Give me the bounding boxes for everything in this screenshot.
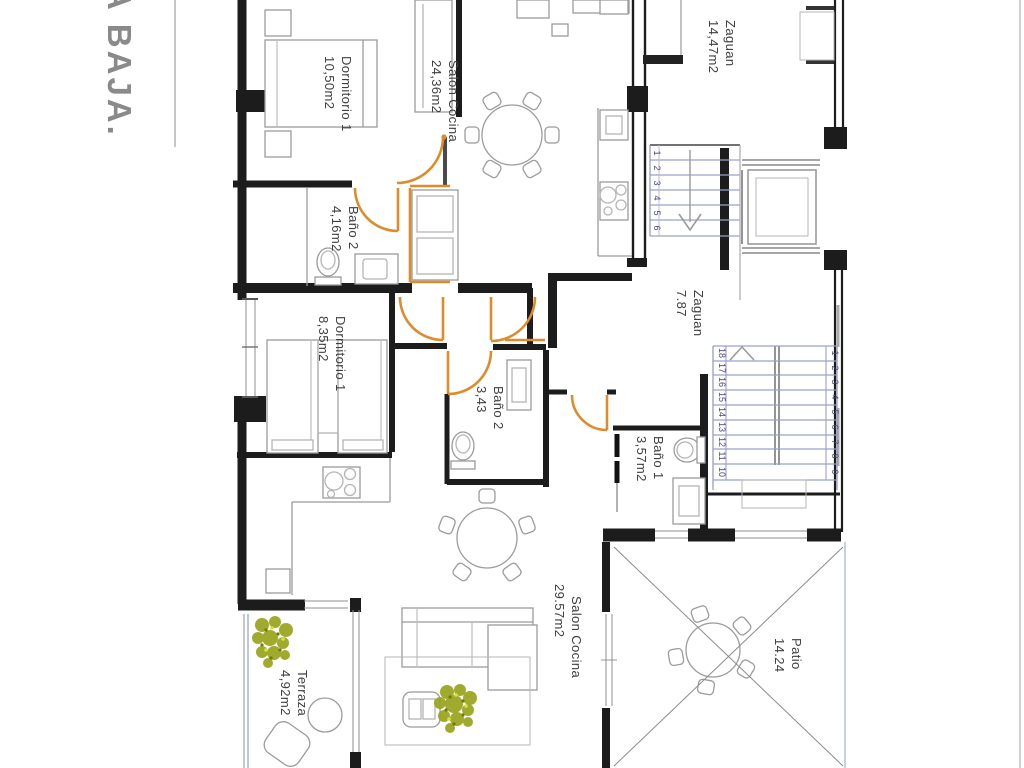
- stair-num: 17: [717, 363, 727, 373]
- door-arc-bano1: [572, 395, 607, 430]
- room-label-dormitorio2: Dormitorio 1 8,35m2: [316, 316, 348, 392]
- room-label-bano2-mid: Baño 2 3,43: [474, 386, 506, 430]
- small-table: [308, 698, 342, 732]
- svg-text:14.24: 14.24: [772, 638, 787, 673]
- stair-num: 10: [717, 467, 727, 477]
- svg-text:4,92m2: 4,92m2: [278, 670, 293, 716]
- door-arc-salon: [397, 137, 443, 183]
- toilet: [452, 432, 474, 460]
- stair-main-left-numbers: 18 17 16 15 14 13 12 11 10: [717, 348, 727, 477]
- elevator: [720, 127, 847, 270]
- plan-title-text: A BAJA.: [101, 0, 138, 138]
- dining-table-bottom: [438, 489, 537, 582]
- stair-num: 16: [717, 377, 727, 387]
- kitchen-bottom: [266, 458, 390, 595]
- stair-num: 2: [652, 165, 662, 170]
- svg-text:Dormitorio 1: Dormitorio 1: [333, 316, 348, 392]
- plant-terraza: [252, 616, 293, 668]
- stair-num: 5: [652, 210, 662, 215]
- svg-text:24,36m2: 24,36m2: [429, 60, 444, 113]
- room-label-salon-bottom: Salon Cocina 29.57m2: [552, 584, 584, 678]
- stair-num: 3: [652, 180, 662, 185]
- floor-plan-drawing: 1 2 3 4 5 6 18 17 16 15 14: [0, 0, 1024, 768]
- svg-text:Dormitorio 1: Dormitorio 1: [339, 56, 354, 132]
- svg-text:14,47m2: 14,47m2: [706, 20, 721, 73]
- plan-title: A BAJA.: [101, 0, 138, 138]
- svg-text:Zaguan: Zaguan: [691, 290, 706, 337]
- chair: [260, 718, 313, 768]
- stair-num: 2: [830, 365, 840, 370]
- stair-num: 13: [717, 422, 727, 432]
- svg-text:29.57m2: 29.57m2: [552, 584, 567, 637]
- stair-num: 7: [830, 439, 840, 444]
- patio-table: [668, 605, 756, 696]
- sink-vanity: [673, 478, 705, 524]
- stair-num: 15: [717, 392, 727, 402]
- room-label-zaguan-mid: Zaguan 7.87: [674, 290, 706, 337]
- floor-plan-page: 1 2 3 4 5 6 18 17 16 15 14: [0, 0, 1024, 768]
- room-label-patio: Patio 14.24: [772, 638, 804, 673]
- svg-text:4,16m2: 4,16m2: [329, 206, 344, 252]
- hall-closet: [412, 190, 458, 280]
- svg-text:Salon Cocina: Salon Cocina: [569, 596, 584, 678]
- side-table: [552, 24, 568, 36]
- bathroom1-fixtures: [673, 437, 705, 524]
- room-label-terraza: Terraza 4,92m2: [278, 670, 310, 717]
- stair-num: 12: [717, 437, 727, 447]
- stair-main-right-numbers: 1 2 3 4 5 6 7 8 9: [830, 350, 840, 474]
- bathroom2-mid-fixtures: [451, 360, 531, 469]
- svg-text:Patio: Patio: [789, 638, 804, 670]
- stair-num: 4: [652, 195, 662, 200]
- stair-num: 8: [830, 453, 840, 458]
- patio-cross: [614, 547, 843, 766]
- svg-text:Baño 2: Baño 2: [491, 386, 506, 430]
- stair-up-arrow-icon: [730, 347, 754, 360]
- plant-salon: [434, 684, 477, 733]
- kitchen-top: [598, 0, 632, 256]
- svg-text:3,57m2: 3,57m2: [634, 436, 649, 482]
- bed-double: [265, 10, 377, 157]
- armchair: [517, 0, 549, 18]
- svg-text:Baño 2: Baño 2: [346, 206, 361, 250]
- stair-num: 6: [830, 424, 840, 429]
- stair-num: 9: [830, 469, 840, 474]
- stair-num: 3: [830, 379, 840, 384]
- svg-text:8,35m2: 8,35m2: [316, 316, 331, 362]
- stair-num: 18: [717, 348, 727, 358]
- room-label-bano1: Baño 1 3,57m2: [634, 436, 666, 482]
- svg-text:Salon Cocina: Salon Cocina: [446, 60, 461, 142]
- staircase-main: 18 17 16 15 14 13 12 11 10 1 2 3 4 5 6 7…: [713, 346, 840, 508]
- stair-num: 4: [830, 394, 840, 399]
- svg-text:Baño 1: Baño 1: [651, 436, 666, 480]
- stair-num: 6: [652, 225, 662, 230]
- door-arc-dormitorio2: [400, 297, 443, 340]
- stair-num: 5: [830, 409, 840, 414]
- toilet: [317, 248, 339, 276]
- svg-text:10,50m2: 10,50m2: [322, 56, 337, 109]
- svg-text:3,43: 3,43: [474, 386, 489, 413]
- room-label-zaguan-top: Zaguan 14,47m2: [706, 20, 738, 73]
- room-label-bano2-top: Baño 2 4,16m2: [329, 206, 361, 252]
- stair-num: 11: [717, 451, 727, 460]
- svg-text:Zaguan: Zaguan: [723, 20, 738, 67]
- stair-num: 1: [830, 350, 840, 355]
- svg-text:Terraza: Terraza: [295, 670, 310, 717]
- svg-text:7.87: 7.87: [674, 290, 689, 317]
- stair-num: 1: [652, 150, 662, 155]
- tv-unit: [403, 692, 440, 727]
- sofa-l: [402, 608, 537, 690]
- dining-table-top: [465, 91, 559, 179]
- stair-num: 14: [717, 407, 727, 417]
- kitchen-sink: [600, 110, 628, 140]
